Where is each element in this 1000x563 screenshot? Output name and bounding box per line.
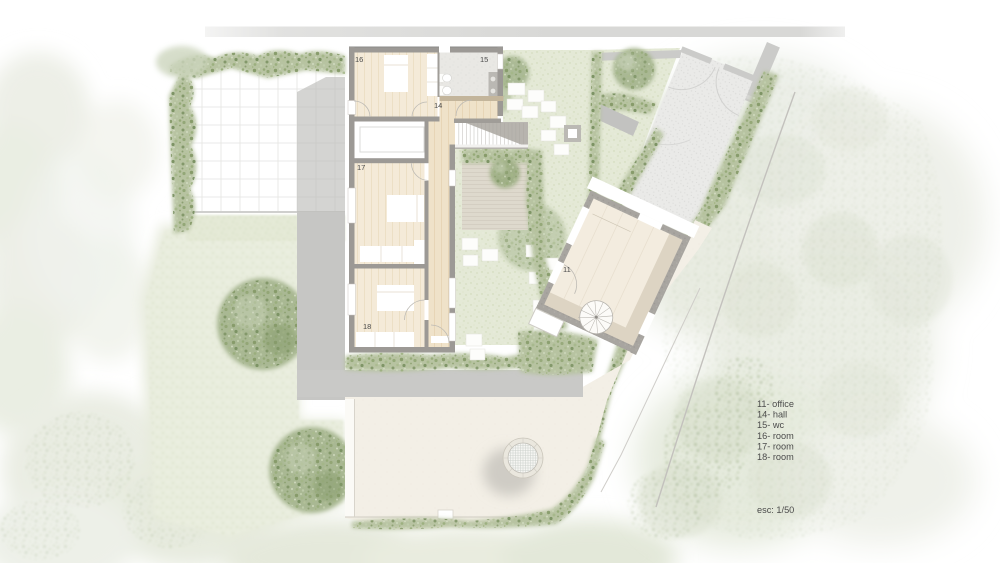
svg-text:11- office: 11- office (757, 399, 794, 409)
svg-text:15: 15 (480, 55, 488, 64)
svg-text:18: 18 (363, 322, 371, 331)
svg-text:18- room: 18- room (757, 452, 794, 462)
svg-text:11: 11 (563, 265, 571, 274)
svg-text:esc: 1/50: esc: 1/50 (757, 505, 794, 515)
svg-text:15- wc: 15- wc (757, 420, 784, 430)
svg-text:14- hall: 14- hall (757, 410, 787, 420)
svg-text:17: 17 (357, 163, 365, 172)
svg-text:16: 16 (355, 55, 363, 64)
svg-text:16- room: 16- room (757, 431, 794, 441)
svg-text:17- room: 17- room (757, 441, 794, 451)
svg-text:14: 14 (434, 101, 442, 110)
